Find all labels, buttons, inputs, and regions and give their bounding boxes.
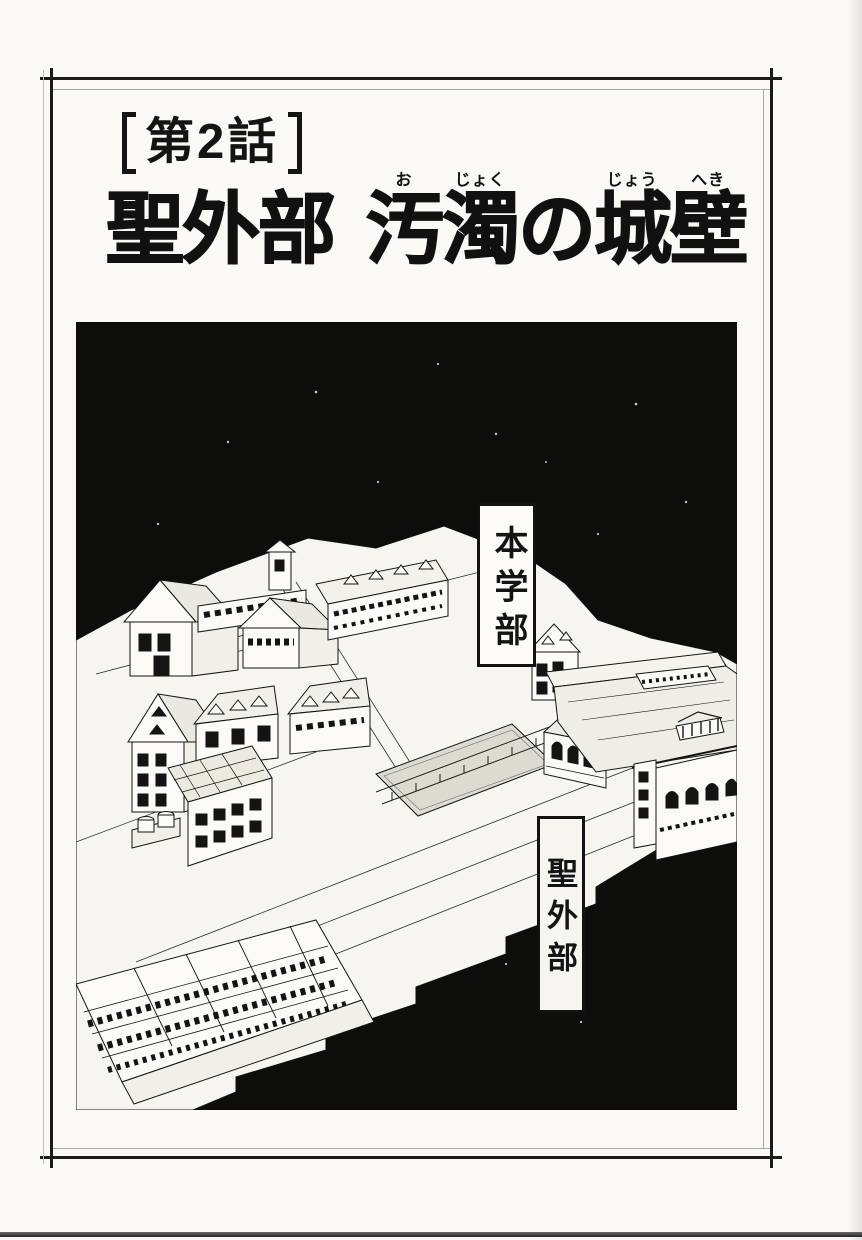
building-arched-facade	[632, 746, 737, 860]
bracket-left-icon	[122, 112, 136, 174]
frame-rule-left-outer	[43, 70, 44, 1164]
chapter-title: 聖外部汚お濁じょくの城じょう壁へき	[106, 172, 786, 271]
frame-rule-left	[50, 68, 53, 1168]
label-sei-gaibu: 聖外部	[537, 816, 585, 1013]
frame-rule-bottom-inner	[53, 1148, 770, 1149]
chapter-number: 第2話	[145, 112, 279, 174]
frame-rule-bottom	[40, 1156, 782, 1159]
bracket-right-icon	[288, 112, 302, 174]
campus-map-drawing	[76, 322, 737, 1110]
scan-edge-shading	[848, 0, 862, 1240]
page-bottom-edge	[0, 1232, 862, 1237]
label-main-campus: 本学部	[477, 503, 536, 667]
chapter-heading: 第2話	[122, 112, 302, 174]
manga-page: 第2話 聖外部汚お濁じょくの城じょう壁へき	[0, 0, 862, 1240]
illustration-panel: 本学部 聖外部	[76, 322, 737, 1110]
label-sei-gaibu-text: 聖外部	[540, 857, 582, 983]
label-main-campus-text: 本学部	[480, 525, 533, 656]
frame-rule-top-inner	[53, 89, 770, 90]
frame-rule-top	[40, 77, 782, 80]
